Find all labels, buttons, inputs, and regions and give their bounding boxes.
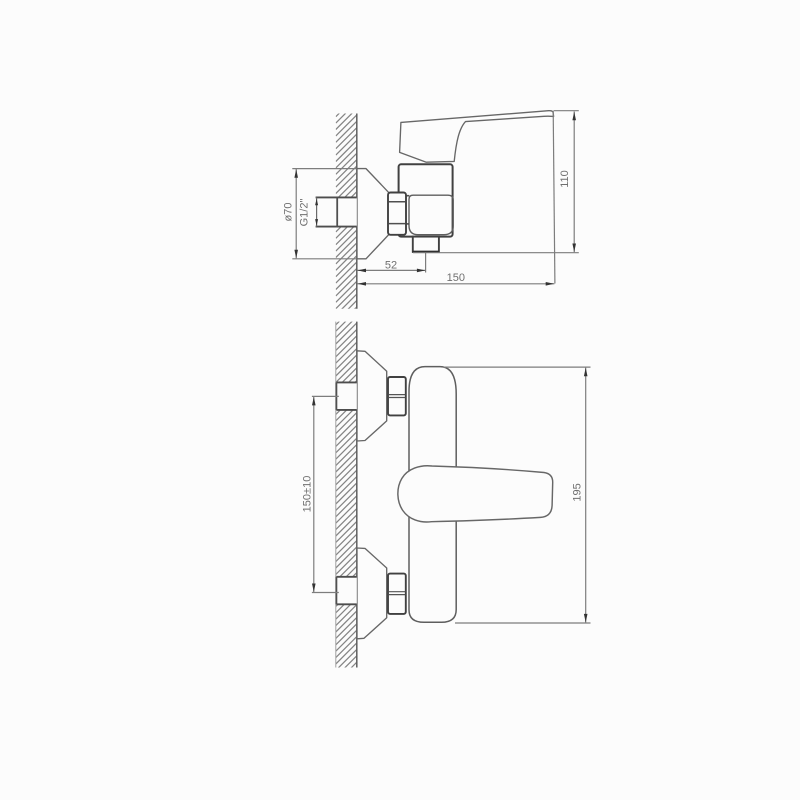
svg-text:150±10: 150±10 — [301, 476, 313, 513]
svg-text:52: 52 — [385, 259, 397, 271]
svg-text:G1/2": G1/2" — [299, 199, 311, 227]
svg-text:ø70: ø70 — [283, 203, 295, 222]
svg-text:110: 110 — [559, 170, 571, 188]
svg-text:195: 195 — [571, 483, 583, 501]
svg-text:150: 150 — [447, 272, 465, 284]
